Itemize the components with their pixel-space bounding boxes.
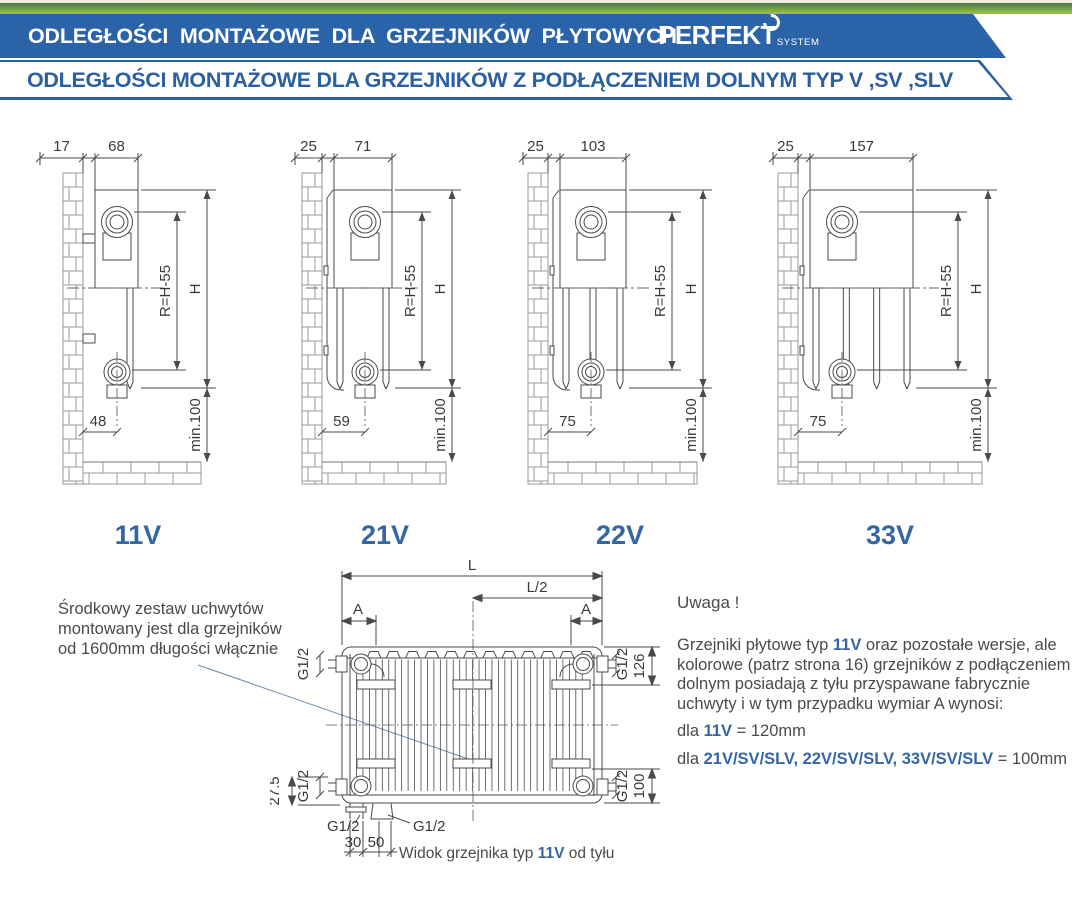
catalog-page: ODLEGŁOŚCI MONTAŻOWE DLA GRZEJNIKÓW PŁYT… xyxy=(0,0,1072,898)
dimension-label: H xyxy=(968,284,985,295)
dimension-label: 48 xyxy=(90,413,107,430)
logo-text: PERFEKT xyxy=(658,22,776,49)
corner-ports xyxy=(328,654,616,819)
svg-text:G1/2: G1/2 xyxy=(295,770,312,803)
section-diagram-21v: 2571R=H-55Hmin.1005921V xyxy=(285,138,500,558)
dimension-label: 25 xyxy=(300,138,317,155)
svg-text:A: A xyxy=(353,601,363,618)
svg-text:L/2: L/2 xyxy=(527,579,548,596)
convector-fins xyxy=(357,652,594,792)
mounting-brackets xyxy=(357,680,590,768)
brand-banner: ODLEGŁOŚCI MONTAŻOWE DLA GRZEJNIKÓW PŁYT… xyxy=(0,14,1006,58)
dimension-label: 25 xyxy=(527,138,544,155)
svg-text:A: A xyxy=(581,601,591,618)
dimension-label: R=H-55 xyxy=(402,265,419,317)
subtitle-text: ODLEGŁOŚCI MONTAŻOWE DLA GRZEJNIKÓW Z PO… xyxy=(27,61,953,99)
type-label: 22V xyxy=(596,520,644,550)
type-label: 11V xyxy=(115,520,162,550)
brick-wall xyxy=(778,173,798,484)
radiator-body xyxy=(782,190,939,426)
radiator-cross-section: 1768R=H-55Hmin.1004811V xyxy=(25,138,240,553)
type-label: 21V xyxy=(361,520,409,550)
floor xyxy=(322,462,446,484)
dimension-label: H xyxy=(432,284,449,295)
svg-text:G1/2: G1/2 xyxy=(327,818,360,835)
dimension-label: min.100 xyxy=(187,398,204,451)
dimension-label: min.100 xyxy=(683,398,700,451)
dimension-label: R=H-55 xyxy=(938,265,955,317)
svg-text:G1/2: G1/2 xyxy=(295,648,312,681)
radiator-body xyxy=(532,190,652,426)
page-title: ODLEGŁOŚCI MONTAŻOWE DLA GRZEJNIKÓW PŁYT… xyxy=(28,14,677,58)
radiator-cross-section: 25157R=H-55Hmin.1007533V xyxy=(765,138,1047,553)
svg-text:126: 126 xyxy=(631,653,648,678)
section-diagram-33v: 25157R=H-55Hmin.1007533V xyxy=(765,138,1047,558)
svg-text:G1/2: G1/2 xyxy=(413,818,446,835)
uwaga-rules: dla 11V = 120mmdla 21V/SV/SLV, 22V/SV/SL… xyxy=(677,722,1070,769)
dimension-label: 103 xyxy=(580,138,605,155)
dimension-label: min.100 xyxy=(968,398,985,451)
floor xyxy=(83,462,201,484)
dimension-label: 71 xyxy=(355,138,372,155)
dimension-label: 75 xyxy=(810,413,827,430)
rear-view-diagram: L L/2 A A G1/2 G1/2 G1/2 G1/2 126 100 27… xyxy=(270,555,670,885)
logo-subtext: SYSTEM xyxy=(777,36,820,49)
radiator-cross-section: 25103R=H-55Hmin.1007522V xyxy=(515,138,737,553)
brick-wall xyxy=(528,173,548,484)
dimension-label: 59 xyxy=(333,413,350,430)
center-bracket-note: Środkowy zestaw uchwytówmontowany jest d… xyxy=(58,599,282,659)
rear-dimension-labels: L L/2 A A G1/2 G1/2 G1/2 G1/2 126 100 27… xyxy=(270,557,648,851)
svg-text:50: 50 xyxy=(368,834,385,851)
brick-wall xyxy=(63,173,83,484)
dimension-label: H xyxy=(683,284,700,295)
floor xyxy=(798,462,982,484)
dimension-label: R=H-55 xyxy=(652,265,669,317)
dimension-label: 17 xyxy=(53,138,70,155)
brick-wall xyxy=(302,173,322,484)
dimension-label: 157 xyxy=(849,138,874,155)
section-diagram-22v: 25103R=H-55Hmin.1007522V xyxy=(515,138,737,558)
type-label: 33V xyxy=(866,520,914,550)
svg-text:100: 100 xyxy=(631,773,648,798)
uwaga-title: Uwaga ! xyxy=(677,593,1070,613)
perfekt-logo: PERFEKT SYSTEM xyxy=(658,22,820,49)
caption-type-accent: 11V xyxy=(538,845,565,862)
dimension-label: min.100 xyxy=(432,398,449,451)
section-diagram-11v: 1768R=H-55Hmin.1004811V xyxy=(25,138,240,558)
dimension-label: R=H-55 xyxy=(157,265,174,317)
dimension-label: 75 xyxy=(559,413,576,430)
dimension-label: 25 xyxy=(777,138,794,155)
dimension-label: H xyxy=(187,284,204,295)
uwaga-note: Uwaga ! Grzejniki płytowe typ 11V oraz p… xyxy=(677,593,1070,769)
svg-text:G1/2: G1/2 xyxy=(614,648,631,681)
dimension-label: 68 xyxy=(108,138,125,155)
svg-text:27.5: 27.5 xyxy=(270,776,283,805)
svg-text:G1/2: G1/2 xyxy=(614,770,631,803)
rear-view-caption: Widok grzejnika typ 11V od tyłu xyxy=(399,845,614,863)
radiator-cross-section: 2571R=H-55Hmin.1005921V xyxy=(285,138,500,553)
top-green-strip xyxy=(0,3,1072,14)
rear-dimensions xyxy=(289,571,661,857)
svg-text:30: 30 xyxy=(345,834,362,851)
svg-text:L: L xyxy=(468,557,476,574)
uwaga-paragraph: Grzejniki płytowe typ 11V oraz pozostałe… xyxy=(677,636,1070,714)
floor xyxy=(548,462,697,484)
